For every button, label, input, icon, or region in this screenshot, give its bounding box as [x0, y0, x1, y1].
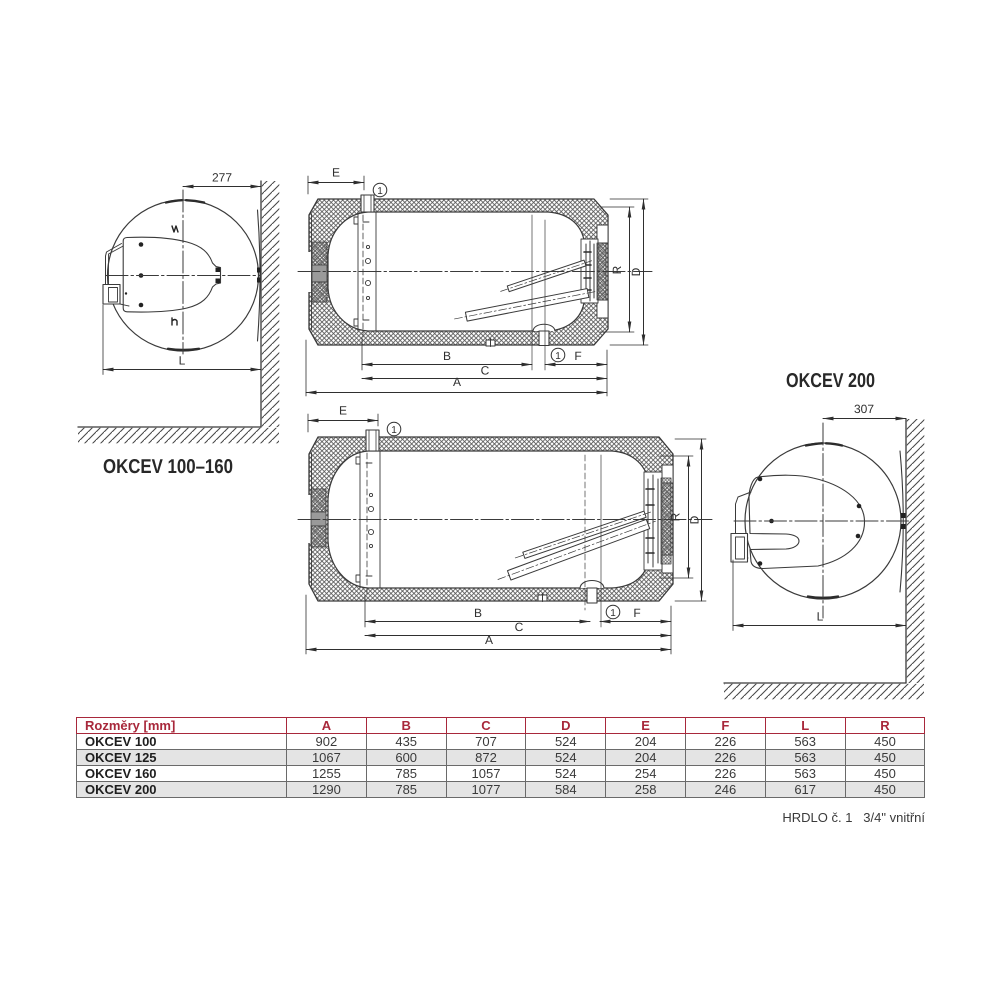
svg-text:L: L	[179, 354, 186, 368]
svg-text:1: 1	[555, 351, 561, 362]
svg-text:307: 307	[854, 402, 874, 416]
svg-text:1: 1	[610, 608, 616, 619]
svg-text:F: F	[633, 606, 640, 620]
svg-text:R: R	[610, 265, 624, 274]
svg-text:B: B	[474, 606, 482, 620]
svg-text:277: 277	[212, 171, 232, 185]
svg-text:D: D	[629, 267, 643, 276]
svg-text:B: B	[443, 349, 451, 363]
svg-text:A: A	[453, 375, 461, 389]
svg-text:R: R	[669, 512, 683, 521]
svg-text:D: D	[688, 515, 702, 524]
svg-text:OKCEV 100–160: OKCEV 100–160	[103, 456, 233, 478]
svg-text:E: E	[339, 404, 347, 418]
svg-text:E: E	[332, 166, 340, 180]
svg-text:C: C	[515, 620, 524, 634]
svg-text:L: L	[817, 610, 824, 624]
svg-text:1: 1	[377, 186, 383, 197]
svg-text:C: C	[481, 364, 490, 378]
svg-text:1: 1	[391, 425, 397, 436]
svg-text:A: A	[485, 633, 493, 647]
svg-text:F: F	[574, 349, 581, 363]
svg-text:OKCEV 200: OKCEV 200	[786, 370, 875, 392]
